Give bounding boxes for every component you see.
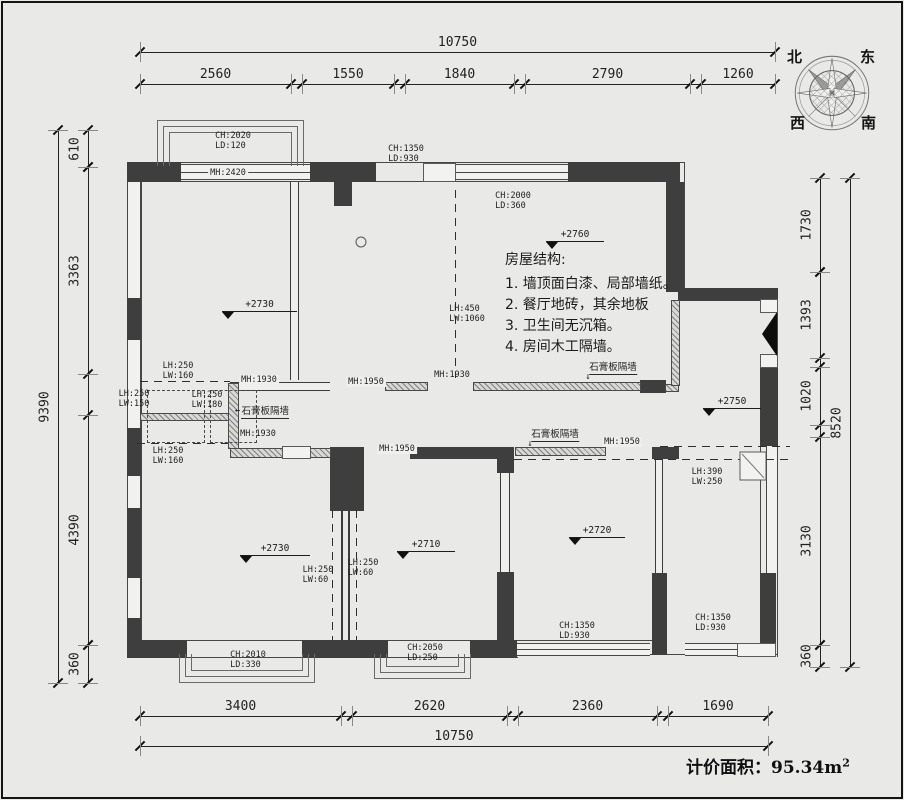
- arrow-icon: ←: [235, 406, 240, 419]
- wall-segment: [640, 380, 666, 393]
- level-triangle-icon: [222, 312, 234, 319]
- wall-segment: [760, 573, 776, 643]
- extension-line: [840, 178, 860, 179]
- wall-segment: [470, 640, 517, 658]
- window: [766, 446, 778, 573]
- notes-item: 2. 餐厅地砖，其余地板: [505, 295, 677, 316]
- area-label: 计价面积：: [686, 758, 771, 778]
- wall-segment: [330, 447, 364, 511]
- extension-line: [701, 74, 702, 94]
- dimension-label: 8520: [830, 407, 845, 438]
- window: [685, 643, 737, 656]
- dimension-label: 1840: [444, 67, 475, 82]
- window: [517, 643, 650, 656]
- dimension-label: 3130: [800, 525, 815, 556]
- level-triangle-icon: [240, 556, 252, 563]
- wall-label: MH:2420: [208, 168, 248, 178]
- gypsum-partition: [230, 448, 331, 458]
- level-triangle-icon: [703, 409, 715, 416]
- dashed-line: [137, 443, 228, 444]
- extension-line: [657, 706, 658, 726]
- dashed-line: [514, 459, 790, 460]
- floor-plan-drawing: CH:2020LD:120MH:2420CH:1350LD:930CH:2000…: [0, 0, 904, 800]
- wall-label: CH:1350LD:930: [388, 144, 424, 164]
- dimension-label: 9390: [38, 391, 53, 422]
- extension-line: [78, 374, 98, 375]
- dimension-label: 1690: [702, 699, 733, 714]
- notes-item: 4. 房间木工隔墙。: [505, 337, 677, 358]
- extension-line: [140, 74, 141, 94]
- wall-segment: [127, 428, 141, 476]
- extension-line: [514, 74, 515, 94]
- extension-line: [78, 683, 98, 684]
- area-value: 95.34m: [771, 758, 842, 778]
- wall-label: MH:1930: [434, 370, 470, 380]
- extension-line: [775, 42, 776, 62]
- wall-line: [684, 162, 685, 289]
- wall-segment: [310, 162, 376, 182]
- extension-line: [668, 706, 669, 726]
- extension-line: [810, 367, 830, 368]
- notes-heading: 房屋结构:: [505, 250, 677, 271]
- area-sup: 2: [842, 756, 850, 769]
- wall-segment: [127, 298, 141, 340]
- dimension-label: 10750: [438, 35, 477, 50]
- dashed-line: [660, 446, 790, 447]
- wall-line: [141, 181, 142, 640]
- gypsum-partition: [385, 382, 428, 391]
- dimension-label: 610: [68, 137, 83, 160]
- wall-label: 石膏板隔墙↓: [589, 362, 637, 375]
- arrow-icon: ↓: [585, 372, 590, 383]
- extension-line: [518, 706, 519, 726]
- dimension-line: [140, 746, 768, 747]
- interior-wall: [655, 459, 663, 573]
- dashed-line: [455, 190, 456, 378]
- wall-segment: [760, 368, 778, 446]
- extension-line: [140, 736, 141, 756]
- extension-line: [341, 706, 342, 726]
- notes-item: 1. 墙顶面白漆、局部墙纸。: [505, 274, 677, 295]
- wall-label: LH:250LW:60: [303, 565, 334, 585]
- notes-list: 1. 墙顶面白漆、局部墙纸。2. 餐厅地砖，其余地板3. 卫生间无沉箱。4. 房…: [505, 274, 677, 358]
- extension-line: [810, 437, 830, 438]
- dimension-label: 2360: [572, 699, 603, 714]
- extension-line: [507, 706, 508, 726]
- wall-label: CH:2020LD:120: [215, 131, 251, 151]
- dashed-line: [140, 381, 230, 382]
- wall-opening: [737, 643, 776, 657]
- wall-label: LH:250LW:60: [348, 558, 379, 578]
- wall-segment: [652, 573, 667, 655]
- extension-line: [352, 706, 353, 726]
- dimension-line: [88, 130, 89, 683]
- compass-south-label: 南: [861, 112, 876, 133]
- level-triangle-icon: [546, 242, 558, 249]
- extension-line: [302, 74, 303, 94]
- dimension-label: 4390: [68, 514, 83, 545]
- wall-segment: [568, 162, 680, 182]
- dimension-label: 2620: [414, 699, 445, 714]
- wall-label: LH:250LW:150: [119, 389, 150, 409]
- extension-line: [48, 683, 68, 684]
- compass-east-label: 东: [860, 46, 875, 67]
- dimension-line: [140, 84, 775, 85]
- extension-line: [810, 178, 830, 179]
- extension-line: [140, 706, 141, 726]
- dimension-label: 1393: [800, 299, 815, 330]
- wall-opening: [423, 163, 456, 182]
- wall-label: CH:1350LD:930: [695, 613, 731, 633]
- wall-label: LH:250LW:160: [163, 361, 194, 381]
- extension-line: [48, 130, 68, 131]
- interior-wall: [290, 182, 299, 380]
- extension-line: [405, 74, 406, 94]
- wall-segment: [652, 447, 679, 459]
- wall-label: LH:390LW:250: [692, 467, 723, 487]
- wall-label: 石膏板隔墙↓: [531, 429, 579, 442]
- dimension-label: 360: [68, 652, 83, 675]
- dimension-label: 3363: [68, 255, 83, 286]
- window: [127, 182, 141, 298]
- level-triangle-icon: [397, 552, 409, 559]
- dimension-label: 2560: [200, 67, 231, 82]
- wall-line: [760, 446, 761, 573]
- floor-plan-sheet: CH:2020LD:120MH:2420CH:1350LD:930CH:2000…: [0, 0, 904, 800]
- extension-line: [775, 74, 776, 94]
- arrow-icon: ↓: [527, 439, 532, 450]
- extension-line: [78, 167, 98, 168]
- dimension-label: 1730: [800, 209, 815, 240]
- compass-west-label: 西: [790, 112, 805, 133]
- window: [127, 340, 141, 428]
- window: [127, 476, 141, 508]
- level-marker: +2710: [397, 540, 455, 552]
- wall-opening: [760, 354, 778, 368]
- dimension-label: 1020: [800, 380, 815, 411]
- wall-label: LH:450LW:1060: [449, 304, 485, 324]
- dimension-label: 10750: [434, 729, 473, 744]
- extension-line: [78, 645, 98, 646]
- extension-line: [810, 272, 830, 273]
- extension-line: [394, 74, 395, 94]
- dimension-label: 1260: [722, 67, 753, 82]
- dimension-line: [140, 52, 775, 53]
- compass-north-label: 北: [787, 46, 802, 67]
- extension-line: [140, 42, 141, 62]
- wall-segment: [127, 508, 141, 578]
- dimension-label: 1550: [332, 67, 363, 82]
- level-marker: +2730: [222, 300, 297, 312]
- structure-notes: 房屋结构: 1. 墙顶面白漆、局部墙纸。2. 餐厅地砖，其余地板3. 卫生间无沉…: [505, 250, 677, 358]
- dimension-line: [58, 130, 59, 683]
- dimension-line: [850, 178, 851, 667]
- interior-wall: [500, 473, 510, 572]
- wall-label: LH:250LW:160: [153, 446, 184, 466]
- extension-line: [840, 667, 860, 668]
- wall-opening: [760, 299, 778, 313]
- extension-line: [690, 74, 691, 94]
- notes-item: 3. 卫生间无沉箱。: [505, 316, 677, 337]
- wall-label: CH:2000LD:360: [495, 191, 531, 211]
- level-marker: +2760: [546, 230, 604, 242]
- wall-label: CH:2050LD:250: [407, 643, 443, 663]
- wall-segment: [410, 447, 514, 459]
- wall-segment: [497, 459, 514, 473]
- extension-line: [768, 706, 769, 726]
- extension-line: [810, 358, 830, 359]
- level-triangle-icon: [569, 538, 581, 545]
- gypsum-partition: [473, 382, 641, 391]
- wall-label: MH:1950: [602, 437, 642, 447]
- wall-segment: [334, 182, 352, 206]
- wall-label: MH:1930: [240, 429, 276, 439]
- dimension-label: 3400: [225, 699, 256, 714]
- wall-label: CH:2010LD:330: [230, 650, 266, 670]
- window: [127, 578, 141, 618]
- wall-segment: [127, 640, 187, 658]
- wall-label: ←石膏板隔墙: [235, 406, 289, 419]
- wall-segment: [497, 572, 514, 642]
- extension-line: [810, 425, 830, 426]
- wall-label: MH:1930: [239, 375, 279, 385]
- extension-line: [291, 74, 292, 94]
- dimension-label: 2790: [592, 67, 623, 82]
- level-marker: +2730: [240, 544, 310, 556]
- extension-line: [78, 415, 98, 416]
- wall-label: MH:1950: [377, 444, 417, 454]
- level-marker: +2720: [569, 526, 625, 538]
- extension-line: [78, 130, 98, 131]
- level-marker: +2750: [703, 397, 761, 409]
- wall-opening: [282, 446, 311, 459]
- pricing-area-text: 计价面积：95.34m2: [686, 753, 850, 778]
- wall-label: MH:1950: [346, 377, 386, 387]
- wall-label: LH:250LW:180: [192, 390, 223, 410]
- extension-line: [525, 74, 526, 94]
- dimension-label: 360: [800, 644, 815, 667]
- window: [455, 164, 568, 180]
- dimension-line: [140, 716, 768, 717]
- wall-label: CH:1350LD:930: [559, 621, 595, 641]
